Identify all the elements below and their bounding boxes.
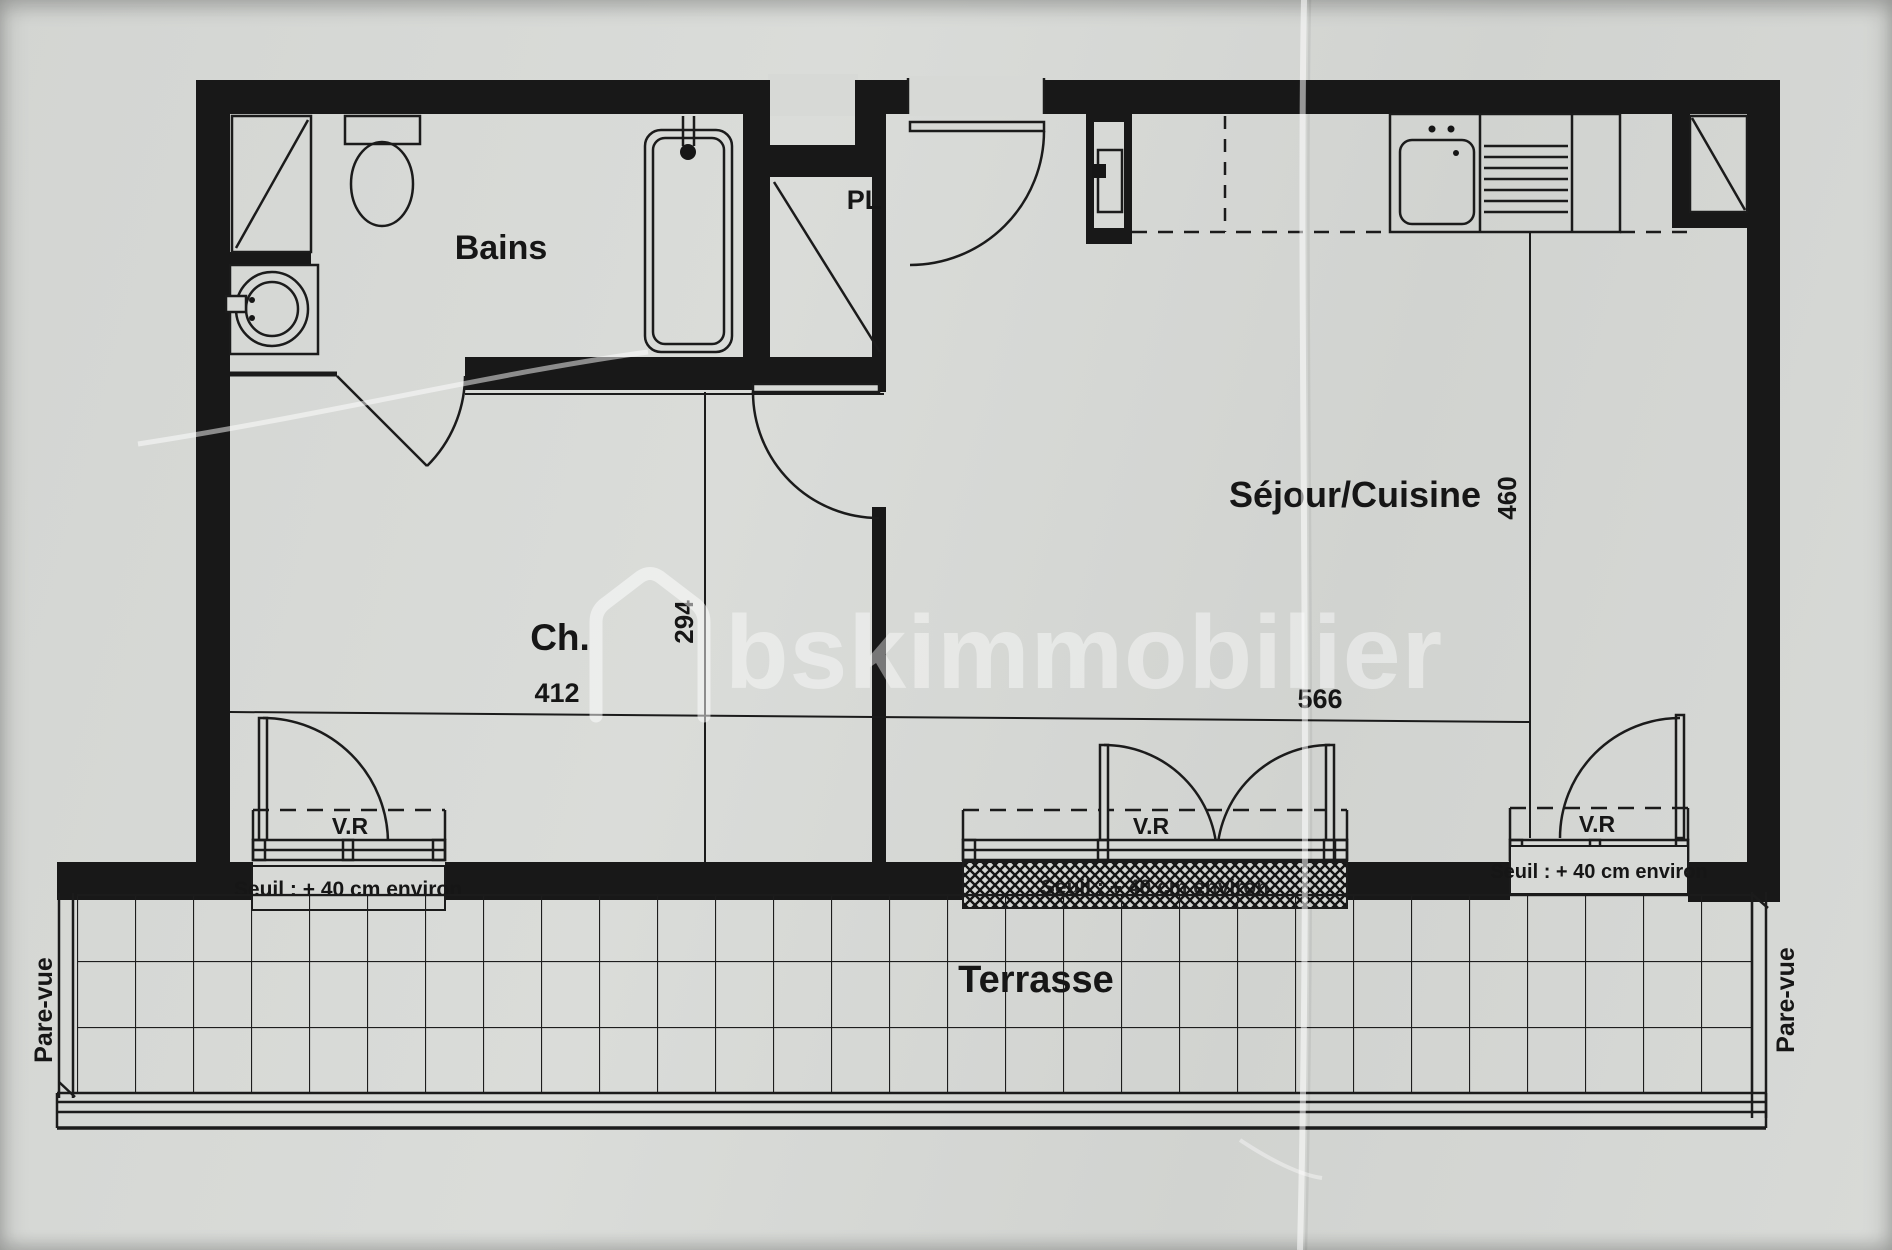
doors: [337, 122, 1044, 518]
drainboard-icon: [1484, 146, 1568, 212]
entrance-opening: [908, 76, 1044, 116]
sill-note-label: Seuil : + 40 cm environ: [1490, 861, 1707, 883]
corner-shaft-wall-bottom: [1672, 212, 1747, 228]
entrance-door-swing: [910, 131, 1044, 265]
entrance-door-leaf: [910, 122, 1044, 131]
washbasin-tap-icon: [226, 296, 246, 312]
wall-left: [196, 80, 230, 862]
corner-shaft-wall-left: [1672, 114, 1690, 228]
toilet-bowl-icon: [351, 142, 413, 226]
privacy-screen-label-right: Pare-vue: [1772, 947, 1800, 1053]
roller-shutter-label: V.R: [332, 813, 369, 839]
washbasin-dot: [249, 297, 255, 303]
bedroom-door-swing: [753, 392, 879, 518]
wall-right: [1747, 80, 1780, 902]
floor-plan-photo: Seuil : + 40 cm environ V.R V.R Seuil : …: [0, 0, 1892, 1250]
sink-drain-dot: [1453, 150, 1459, 156]
kitchen-fixtures: [1086, 114, 1747, 244]
living-kitchen-label: Séjour/Cuisine: [1229, 474, 1481, 515]
washbasin-dot: [249, 315, 255, 321]
kitchen-counter: [1390, 114, 1620, 232]
wall-bath-closet: [743, 80, 770, 390]
closet-label: PL: [847, 185, 882, 215]
bathroom-label: Bains: [455, 229, 548, 267]
sink-tap-dot: [1448, 126, 1455, 133]
roller-shutter-label: V.R: [1579, 811, 1616, 837]
bedroom-window-bay: Seuil : + 40 cm environ V.R: [234, 718, 462, 910]
toilet-tank-icon: [345, 116, 420, 144]
roller-shutter-label: V.R: [1133, 813, 1170, 839]
watermark-brand: bskimmobilier: [725, 595, 1443, 711]
corner-shaft-diagonal-icon: [1692, 118, 1745, 210]
kitchen-sink-icon: [1400, 140, 1474, 224]
room-labels: Bains PL Ch. Séjour/Cuisine: [455, 185, 1481, 658]
crease-small: [1240, 1140, 1322, 1178]
wall-closet-right-upper: [855, 80, 886, 177]
bathtub-icon: [645, 130, 732, 352]
bathroom-door-leaf: [337, 376, 427, 466]
dim-bedroom-width: 412: [534, 678, 579, 708]
wall-notch-bar: [768, 145, 858, 177]
bathtub-inner: [653, 138, 724, 344]
terrace-front-rail: [57, 1093, 1766, 1128]
bathtub-tap-icon: [680, 144, 696, 160]
dim-living-depth: 460: [1492, 476, 1522, 519]
terrace-label: Terrasse: [958, 959, 1114, 1001]
wall-notch: [768, 74, 858, 116]
wall-bath-stub: [230, 252, 311, 265]
sink-tap-dot: [1429, 126, 1436, 133]
bedroom-window-door-leaf: [259, 718, 267, 843]
watermark-logo-icon: [596, 574, 704, 717]
terrace: Terrasse Pare-vue Pare-vue: [30, 892, 1800, 1128]
living-french-doors-bay: V.R Seuil : + 40 cm environ: [963, 745, 1347, 908]
living-window-door-leaf: [1676, 715, 1684, 838]
terrace-tile-grid: [77, 895, 1752, 1093]
bedroom-label: Ch.: [530, 617, 590, 658]
bedroom-door-leaf: [753, 384, 879, 392]
living-window-bay-right: V.R Seuil : + 40 cm environ: [1490, 715, 1707, 894]
duct-shaft-diagonal-icon: [236, 120, 308, 248]
privacy-screen-label-left: Pare-vue: [30, 957, 58, 1063]
water-heater-latch: [1092, 164, 1106, 178]
bedroom-window-door-swing: [263, 718, 388, 843]
watermark: bskimmobilier: [596, 574, 1443, 717]
floor-plan-svg: Seuil : + 40 cm environ V.R V.R Seuil : …: [0, 0, 1892, 1250]
washbasin-inner: [246, 282, 298, 336]
